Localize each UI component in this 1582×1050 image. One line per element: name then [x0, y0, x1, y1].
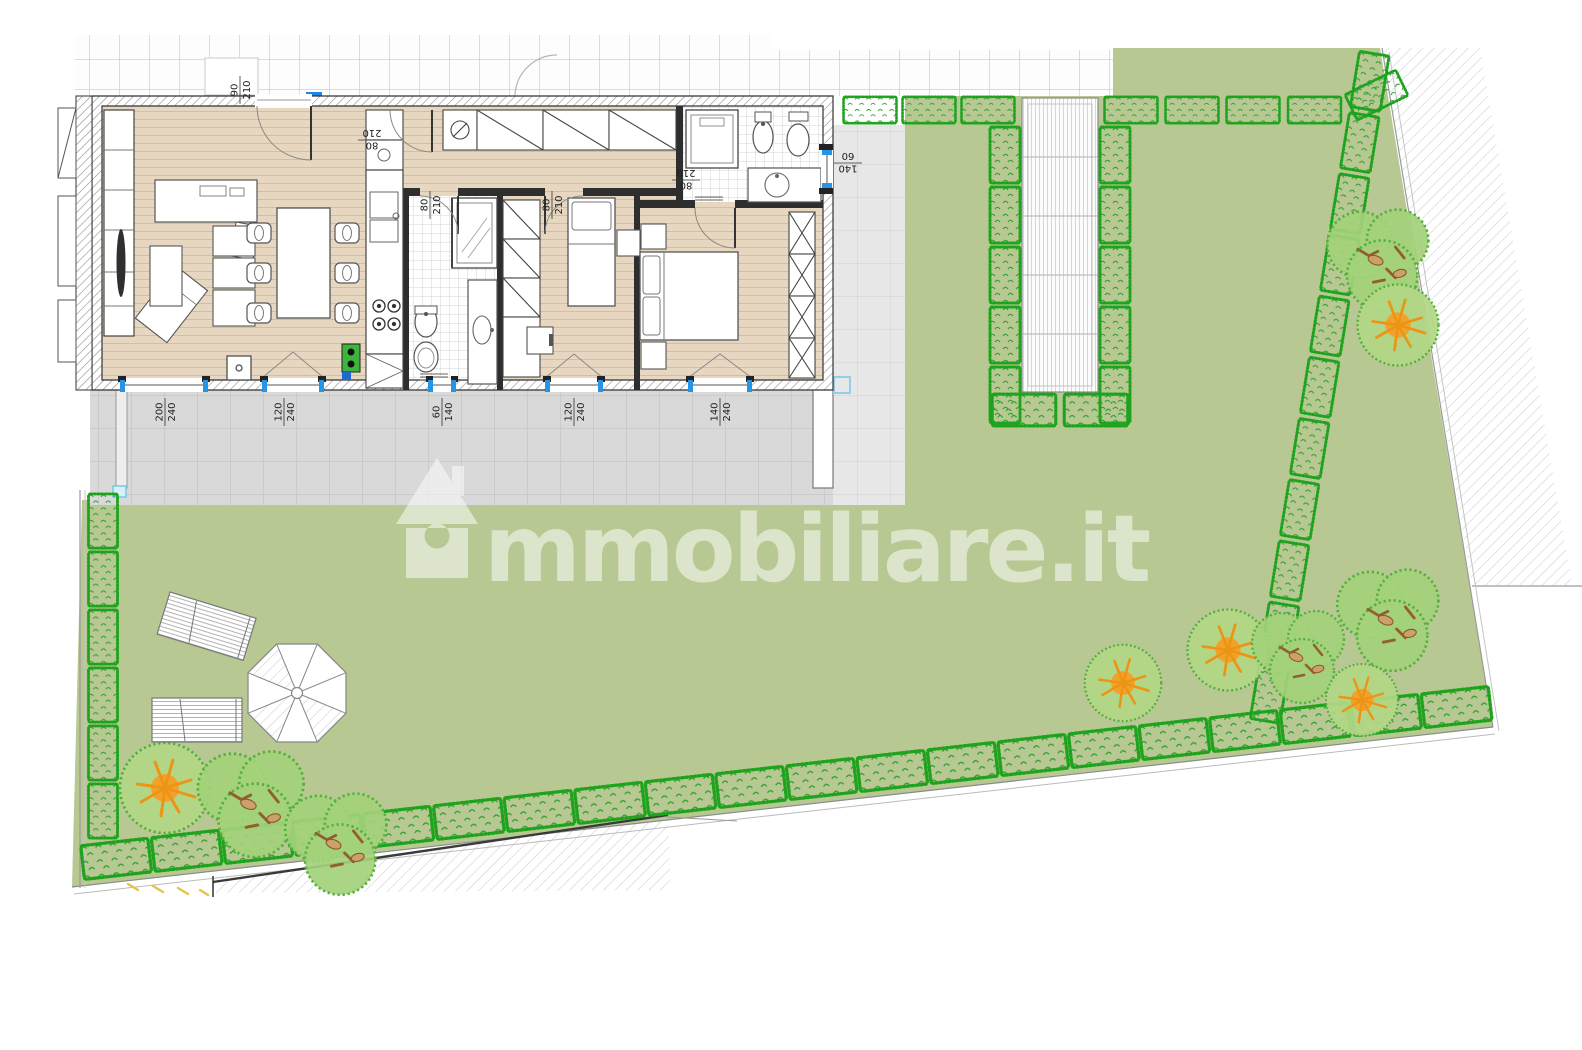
shelving-column [104, 110, 134, 336]
dining-chair [335, 223, 359, 243]
tree-icon [1358, 285, 1439, 366]
svg-text:240: 240 [722, 402, 733, 421]
window-living-large [118, 376, 210, 392]
window-bath1 [426, 376, 458, 392]
svg-text:60: 60 [432, 406, 443, 419]
svg-text:140: 140 [710, 402, 721, 421]
svg-text:240: 240 [286, 402, 297, 421]
side-path [833, 125, 905, 505]
washbasin [473, 316, 491, 344]
svg-text:80: 80 [542, 199, 553, 212]
parasol [248, 644, 346, 742]
coffee-table [150, 246, 182, 306]
tree-icon [120, 743, 210, 833]
pillow [643, 256, 660, 294]
svg-text:140: 140 [838, 163, 857, 174]
svg-text:210: 210 [242, 80, 253, 99]
tv-icon [117, 229, 126, 297]
boiler-valve [342, 372, 351, 380]
nightstand [617, 230, 640, 256]
svg-text:120: 120 [274, 402, 285, 421]
svg-text:240: 240 [167, 402, 178, 421]
svg-text:210: 210 [362, 127, 381, 138]
svg-text:80: 80 [420, 199, 431, 212]
toilet [787, 124, 809, 156]
svg-text:80: 80 [366, 140, 379, 151]
floorplan-screenshot: 90 210 80 210 80 210 80 210 80 210 140 6… [0, 0, 1582, 1050]
boiler-unit [342, 344, 360, 372]
paving-grid-right [772, 50, 1113, 96]
svg-text:60: 60 [842, 150, 855, 161]
svg-text:120: 120 [564, 402, 575, 421]
svg-text:90: 90 [230, 84, 241, 97]
svg-text:80: 80 [680, 180, 693, 191]
garden-ramp-structure [1022, 98, 1098, 392]
watermark-text: mmobiliare.it [484, 495, 1150, 603]
house-plan: 90 210 80 210 80 210 80 210 80 210 140 6… [58, 76, 862, 426]
dining-chair [247, 223, 271, 243]
svg-text:210: 210 [432, 195, 443, 214]
svg-text:210: 210 [554, 195, 565, 214]
downpipe [116, 390, 127, 488]
curb-yellow-marks [128, 884, 208, 895]
pillow [572, 202, 611, 230]
pillar-post [227, 356, 251, 380]
dining-chair [335, 303, 359, 323]
sun-lounger [152, 698, 242, 742]
tree-icon [1326, 664, 1398, 736]
bedside-table [641, 342, 666, 369]
dining-table [277, 208, 330, 318]
hall-wardrobes [443, 110, 676, 150]
paving-grid-left [75, 35, 772, 96]
svg-text:140: 140 [444, 402, 455, 421]
sink-bowl-2 [370, 220, 398, 242]
dining-chair [335, 263, 359, 283]
svg-text:200: 200 [155, 402, 166, 421]
tree-icon [1085, 645, 1162, 722]
svg-text:210: 210 [676, 167, 695, 178]
svg-text:240: 240 [576, 402, 587, 421]
bedside-table [641, 224, 666, 249]
wardrobe-x-column [789, 212, 815, 378]
pillow [643, 297, 660, 335]
floorplan-drawing: 90 210 80 210 80 210 80 210 80 210 140 6… [0, 0, 1582, 1050]
entrance-opening [255, 94, 312, 108]
base-cabinet [366, 354, 403, 388]
dining-chair [247, 263, 271, 283]
window-bath2-east [819, 144, 833, 194]
garden-wall-stub [813, 384, 833, 488]
dining-chair [247, 303, 271, 323]
neighbor-annex [58, 96, 92, 390]
